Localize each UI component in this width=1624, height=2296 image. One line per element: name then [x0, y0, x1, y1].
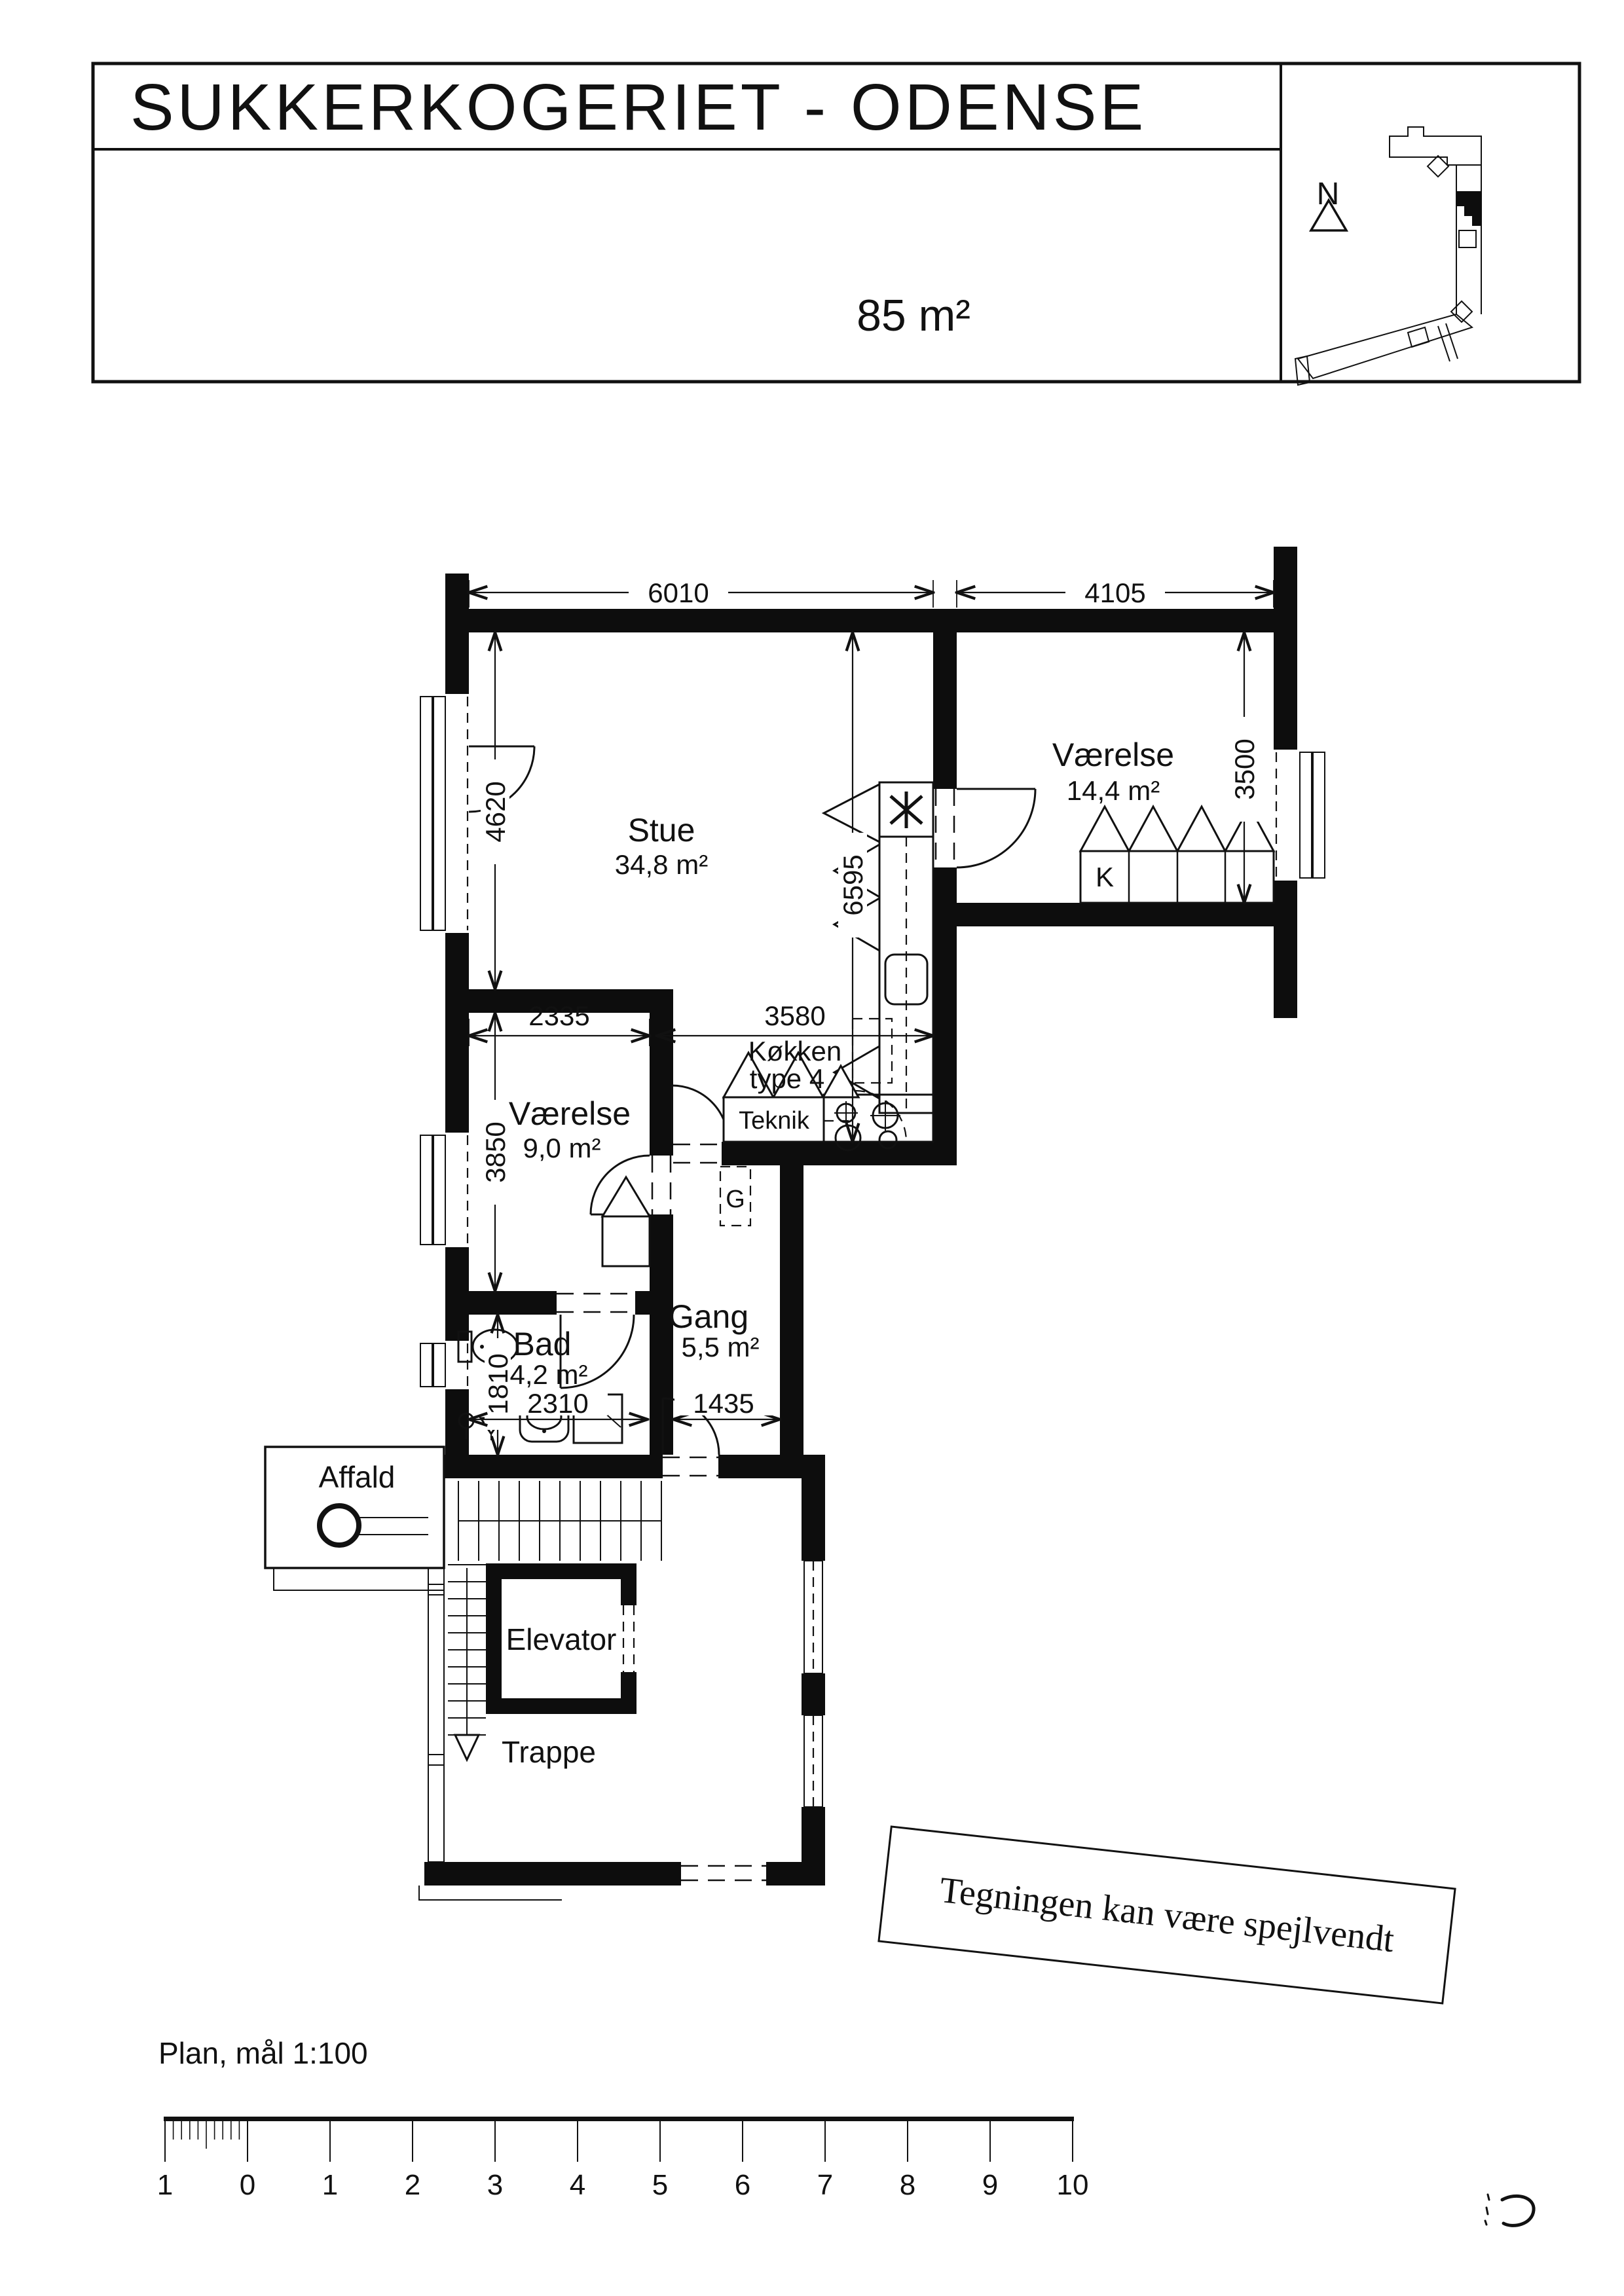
dim-stue-height: 4620: [480, 632, 511, 989]
wardrobe-icon: [602, 1177, 650, 1216]
ruler-tick: 6: [735, 2169, 750, 2201]
window-icon: [1276, 752, 1325, 878]
ruler-tick: 8: [900, 2169, 915, 2201]
room-label-vaerelse-14: Værelse: [1052, 737, 1174, 773]
ruler-tick: 5: [652, 2169, 668, 2201]
trappe-label: Trappe: [502, 1735, 596, 1769]
ruler-tick: 1: [157, 2169, 173, 2201]
garderobe-box: G: [720, 1167, 750, 1226]
scale-label: Plan, mål 1:100: [158, 2036, 368, 2070]
fridge-icon: [879, 782, 933, 837]
stairwell-opening: [681, 1866, 766, 1880]
dimensions: 6010 4105 4620 3500 6595: [469, 576, 1274, 1455]
dim-v9-height: 3850: [480, 1013, 511, 1291]
svg-text:2335: 2335: [528, 1000, 589, 1031]
ruler-tick: 9: [982, 2169, 998, 2201]
room-label-vaerelse-9: Værelse: [509, 1095, 631, 1132]
note-box: Tegningen kan være spejlvendt: [879, 1827, 1455, 2003]
room-label-stue: Stue: [628, 812, 695, 848]
room-area-bad: 4,2 m²: [509, 1359, 587, 1390]
ruler-tick: 1: [322, 2169, 338, 2201]
svg-text:1435: 1435: [693, 1388, 754, 1419]
svg-text:3580: 3580: [764, 1000, 825, 1031]
room-area-gang: 5,5 m²: [681, 1332, 759, 1362]
elevator-shaft: Elevator: [486, 1563, 637, 1714]
affald-box: Affald: [265, 1447, 444, 1590]
dim-v14-width: 4105: [957, 576, 1274, 609]
ruler-tick: 0: [240, 2169, 255, 2201]
dim-gang-width: 1435: [673, 1388, 780, 1419]
door-arc-icon: [672, 1085, 728, 1163]
stairs-icon: [448, 1481, 661, 1760]
scale-ruler: Plan, mål 1:100 1 0 1 2 3 4 5 6 7 8 9 10: [157, 2036, 1089, 2201]
ruler-tick: 7: [817, 2169, 833, 2201]
floor-plan-sheet: SUKKERKOGERIET - ODENSE 85 m² N: [0, 0, 1624, 2296]
svg-text:4620: 4620: [480, 781, 511, 842]
svg-text:6595: 6595: [838, 854, 868, 915]
project-title: SUKKERKOGERIET - ODENSE: [130, 71, 1147, 144]
oven-icon: [885, 955, 927, 1004]
ruler-subdivisions: [174, 2121, 240, 2149]
dim-v14-height: 3500: [1229, 632, 1260, 903]
north-label: N: [1317, 177, 1340, 211]
svg-text:3850: 3850: [480, 1121, 511, 1182]
ruler-tick: 3: [487, 2169, 503, 2201]
room-label-bad: Bad: [513, 1326, 572, 1362]
stairs-down-arrow-icon: [455, 1735, 479, 1760]
door-arc-icon: [936, 789, 1035, 867]
window-icon: [420, 1135, 468, 1245]
teknik-label: Teknik: [739, 1107, 810, 1135]
ruler-tick: 2: [405, 2169, 420, 2201]
wardrobe-icon: [1080, 807, 1129, 851]
elevator-label: Elevator: [506, 1622, 617, 1656]
kitchen: Teknik: [724, 782, 933, 1150]
stairwell: Elevator Trappe: [448, 1481, 661, 1769]
koekken-label-2: type 4: [750, 1063, 824, 1094]
window-icon: [420, 697, 468, 930]
wardrobe-icon: [1129, 807, 1177, 851]
title-block: SUKKERKOGERIET - ODENSE 85 m² N: [93, 64, 1579, 385]
svg-text:6010: 6010: [648, 577, 709, 608]
handwritten-mark: [1485, 2195, 1534, 2225]
ruler-tick: 4: [570, 2169, 585, 2201]
wardrobe-v9: [602, 1177, 650, 1266]
svg-text:2310: 2310: [527, 1388, 588, 1419]
room-area-vaerelse-9: 9,0 m²: [523, 1133, 600, 1163]
wardrobe-icon: [1177, 807, 1225, 851]
apartment-area: 85 m²: [857, 291, 970, 340]
affald-label: Affald: [319, 1460, 396, 1494]
koekken-label-1: Køkken: [748, 1036, 841, 1066]
closet-label: K: [1096, 862, 1114, 892]
dim-bad-height: 1810: [483, 1315, 513, 1455]
window-icon: [420, 1343, 468, 1387]
garderobe-label: G: [726, 1186, 745, 1213]
dim-stue-width: 6010: [469, 576, 933, 609]
room-area-stue: 34,8 m²: [615, 849, 708, 880]
ruler-tick: 10: [1057, 2169, 1089, 2201]
svg-text:1810: 1810: [483, 1353, 513, 1414]
svg-text:3500: 3500: [1229, 738, 1260, 799]
room-label-gang: Gang: [669, 1298, 748, 1335]
svg-text:4105: 4105: [1084, 577, 1145, 608]
room-area-vaerelse-14: 14,4 m²: [1067, 775, 1160, 806]
